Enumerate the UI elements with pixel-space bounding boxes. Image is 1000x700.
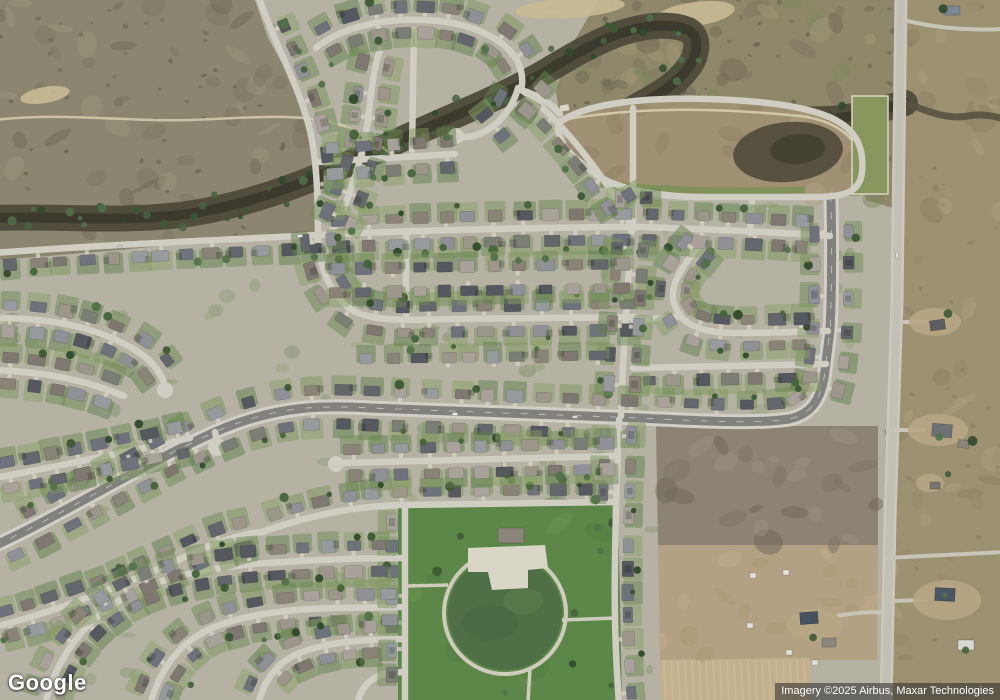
park: [398, 496, 622, 700]
satellite-imagery-layer: [0, 0, 1000, 700]
google-logo[interactable]: Google: [8, 670, 87, 696]
farm-fields: [653, 425, 890, 700]
map-attribution: Imagery ©2025 Airbus, Maxar Technologies: [775, 683, 1000, 700]
map-canvas[interactable]: Google Imagery ©2025 Airbus, Maxar Techn…: [0, 0, 1000, 700]
